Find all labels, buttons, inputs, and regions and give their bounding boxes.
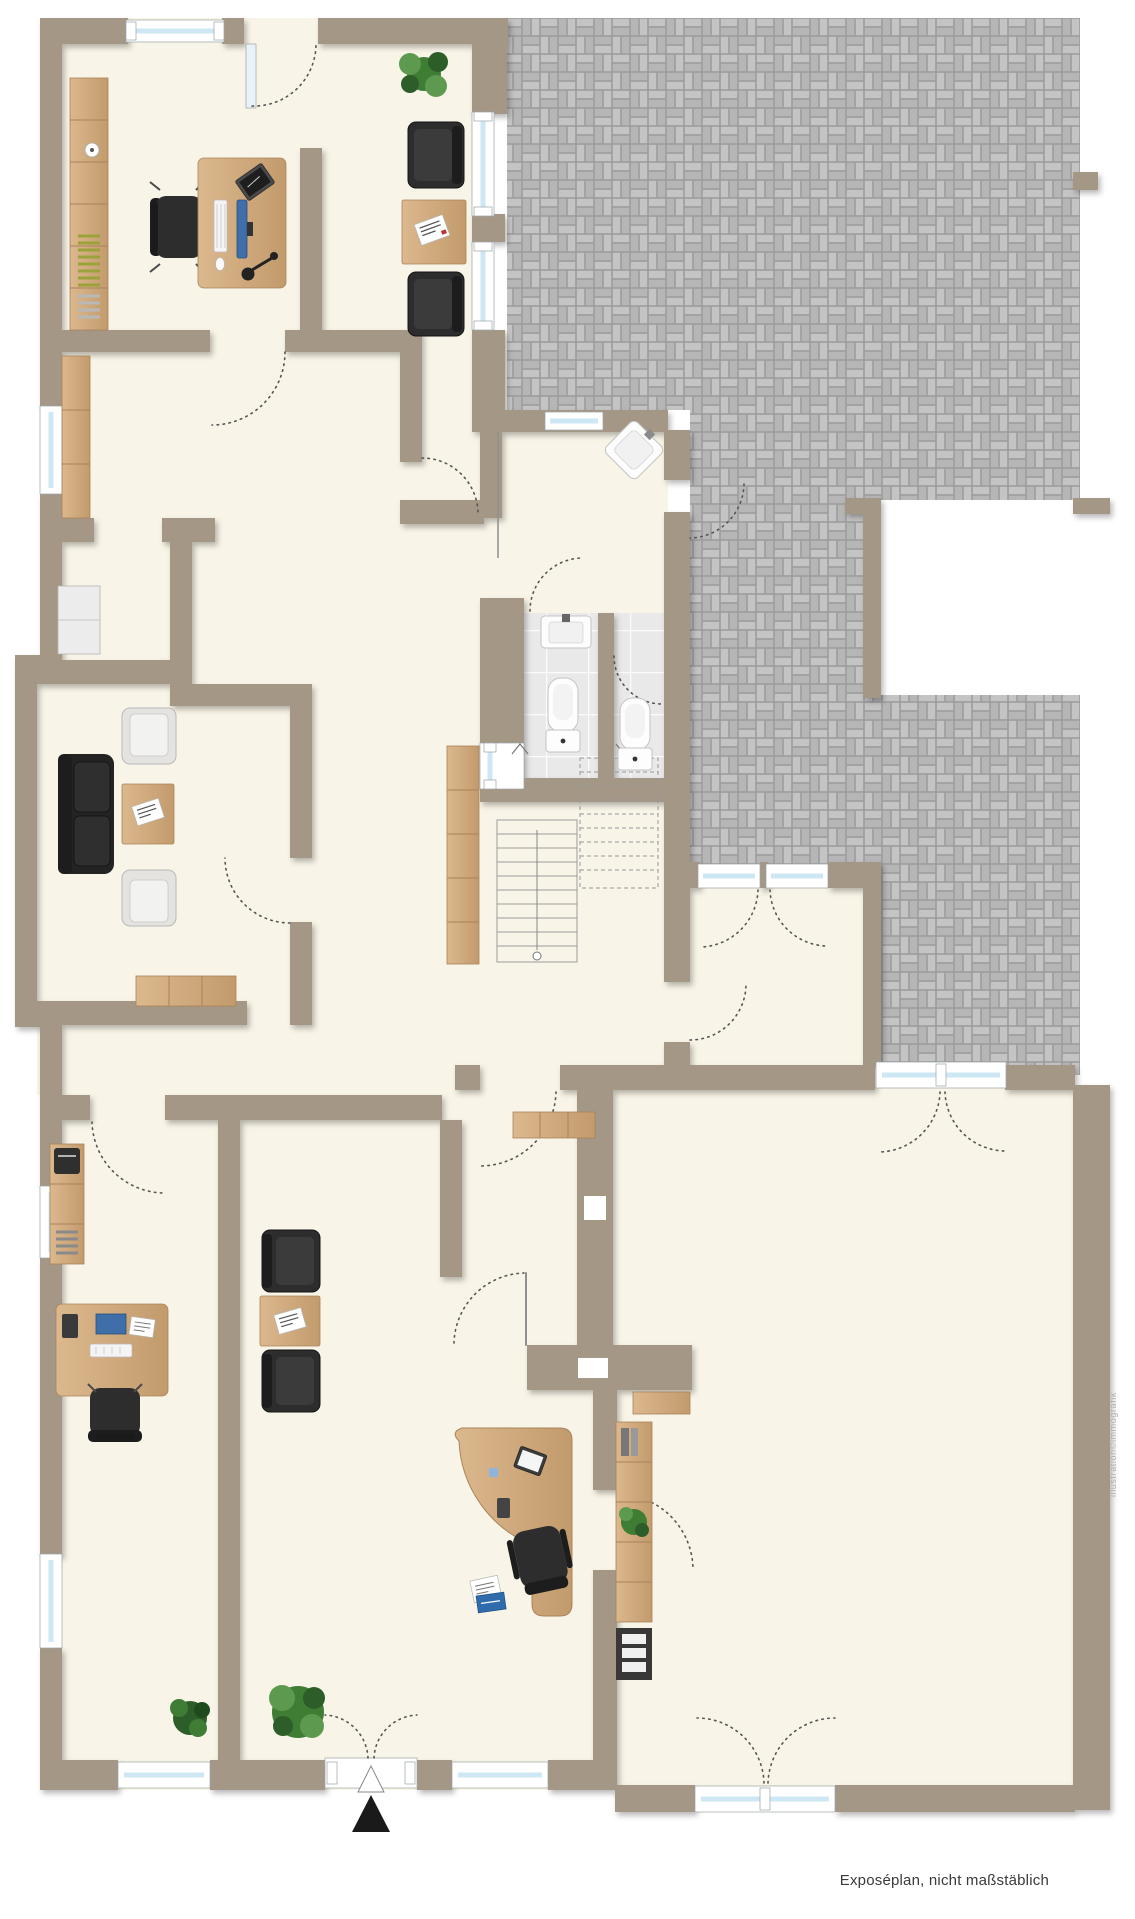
toilet <box>618 698 652 770</box>
wall-segment <box>455 1065 480 1090</box>
armchair-light <box>122 708 176 764</box>
window <box>472 112 494 216</box>
wall-segment <box>664 512 690 885</box>
washbasin-wc <box>541 614 591 648</box>
hall-sideboard <box>62 356 90 518</box>
shelf-bottom-left <box>50 1144 84 1264</box>
window <box>480 743 524 789</box>
toilet <box>546 678 580 752</box>
wall-opening <box>578 1358 608 1378</box>
wall-segment <box>593 1390 617 1490</box>
wall-segment <box>664 430 690 480</box>
side-table <box>260 1296 320 1346</box>
wall-segment <box>15 660 172 684</box>
wall-segment <box>593 1570 617 1787</box>
folder-blue <box>476 1592 506 1613</box>
books <box>631 1428 638 1456</box>
wall-segment <box>170 542 192 685</box>
wall-segment <box>62 518 94 542</box>
window <box>40 1554 62 1648</box>
wall-segment <box>828 862 881 888</box>
wall-segment <box>40 1258 62 1556</box>
window <box>118 1762 210 1788</box>
monitor <box>237 200 247 258</box>
phone <box>62 1314 78 1338</box>
paver-area <box>690 500 863 695</box>
wall-segment <box>560 1065 664 1090</box>
wall-segment <box>162 518 215 542</box>
desk-bottom-left <box>56 1304 168 1396</box>
printer <box>54 1148 80 1174</box>
floorplan-canvas: Exposéplan, nicht maßstäblich illustrati… <box>0 0 1135 1919</box>
wall-segment <box>664 885 690 982</box>
wall-segment <box>62 1095 90 1120</box>
paver-area <box>507 18 1080 410</box>
laptop <box>96 1314 126 1334</box>
wall-segment <box>15 655 37 1027</box>
french-door <box>698 864 760 888</box>
wall-segment <box>472 214 505 242</box>
wall-segment <box>400 500 484 524</box>
coffee-table <box>122 784 174 844</box>
wall-segment <box>300 148 322 330</box>
mouse <box>216 258 225 271</box>
phone <box>497 1498 510 1518</box>
shelf-plants-right <box>616 1422 652 1622</box>
window <box>452 1762 548 1788</box>
wall-segment <box>417 1760 452 1790</box>
wall-segment <box>210 1760 325 1790</box>
wall-segment <box>835 1785 1075 1812</box>
wall-segment <box>218 1120 240 1760</box>
french-door <box>766 864 828 888</box>
wall-opening <box>584 1196 606 1220</box>
wall-segment <box>598 613 614 780</box>
wall-segment <box>62 330 210 352</box>
wall-segment <box>222 18 244 44</box>
wall-segment <box>472 330 505 412</box>
office-chair-bottom-left <box>88 1384 142 1442</box>
wall-segment <box>1073 498 1110 514</box>
wardrobe-white <box>58 586 100 654</box>
stair-newel <box>533 952 541 960</box>
entrance-triangle-filled <box>352 1795 390 1832</box>
paver-area <box>690 695 1080 885</box>
double-door <box>876 1062 1006 1088</box>
stair-shelf <box>447 746 479 964</box>
double-door <box>695 1786 835 1812</box>
armchair-light <box>122 870 176 926</box>
wall-segment <box>863 885 881 1067</box>
sofa <box>58 754 114 874</box>
wall-segment <box>1005 1065 1075 1090</box>
wall-segment <box>40 18 62 406</box>
wall-segment <box>863 510 881 698</box>
papers <box>129 1316 155 1337</box>
paver-area <box>881 885 1080 1075</box>
floor-bottom-right-hall <box>615 1085 1080 1790</box>
door-leaf <box>246 44 256 108</box>
note <box>489 1468 498 1477</box>
bookshelf-top-left <box>70 78 108 330</box>
paver-area <box>690 410 1080 500</box>
armchair-black <box>408 272 464 336</box>
floorplan-drawing <box>0 0 1135 1919</box>
wall-segment <box>1073 1085 1110 1810</box>
caption-text: Exposéplan, nicht maßstäblich <box>840 1872 1049 1889</box>
monitor-stand <box>247 222 253 236</box>
books <box>621 1428 629 1456</box>
window <box>126 20 224 42</box>
armchair-black <box>262 1230 320 1292</box>
floor-middle-right-room <box>660 885 868 1075</box>
corridor-sideboard <box>513 1112 595 1138</box>
shelf-black <box>616 1628 652 1680</box>
wall-segment <box>290 922 312 1025</box>
living-sideboard <box>136 976 236 1006</box>
plant-large-floor <box>269 1685 325 1738</box>
wall-segment <box>400 330 422 462</box>
window <box>40 406 62 494</box>
wall-segment <box>664 1042 690 1065</box>
desk-top-left <box>198 158 286 288</box>
wall-segment <box>1073 172 1098 190</box>
wall-segment <box>615 1785 695 1812</box>
wall-segment <box>40 1760 118 1790</box>
storage-sideboard <box>633 1392 690 1414</box>
armchair-black <box>262 1350 320 1412</box>
wall-segment <box>165 1095 442 1120</box>
wall-segment <box>440 1120 462 1277</box>
wall-segment <box>290 706 312 858</box>
window <box>545 412 603 430</box>
side-table <box>402 200 466 264</box>
wall-segment <box>170 684 312 706</box>
wall-segment <box>527 1345 692 1390</box>
armchair-black <box>408 122 464 188</box>
watermark-text: illustration©immografik <box>1108 1392 1118 1497</box>
wall-segment <box>472 18 507 114</box>
window <box>472 242 494 330</box>
wall-segment <box>664 1065 875 1090</box>
